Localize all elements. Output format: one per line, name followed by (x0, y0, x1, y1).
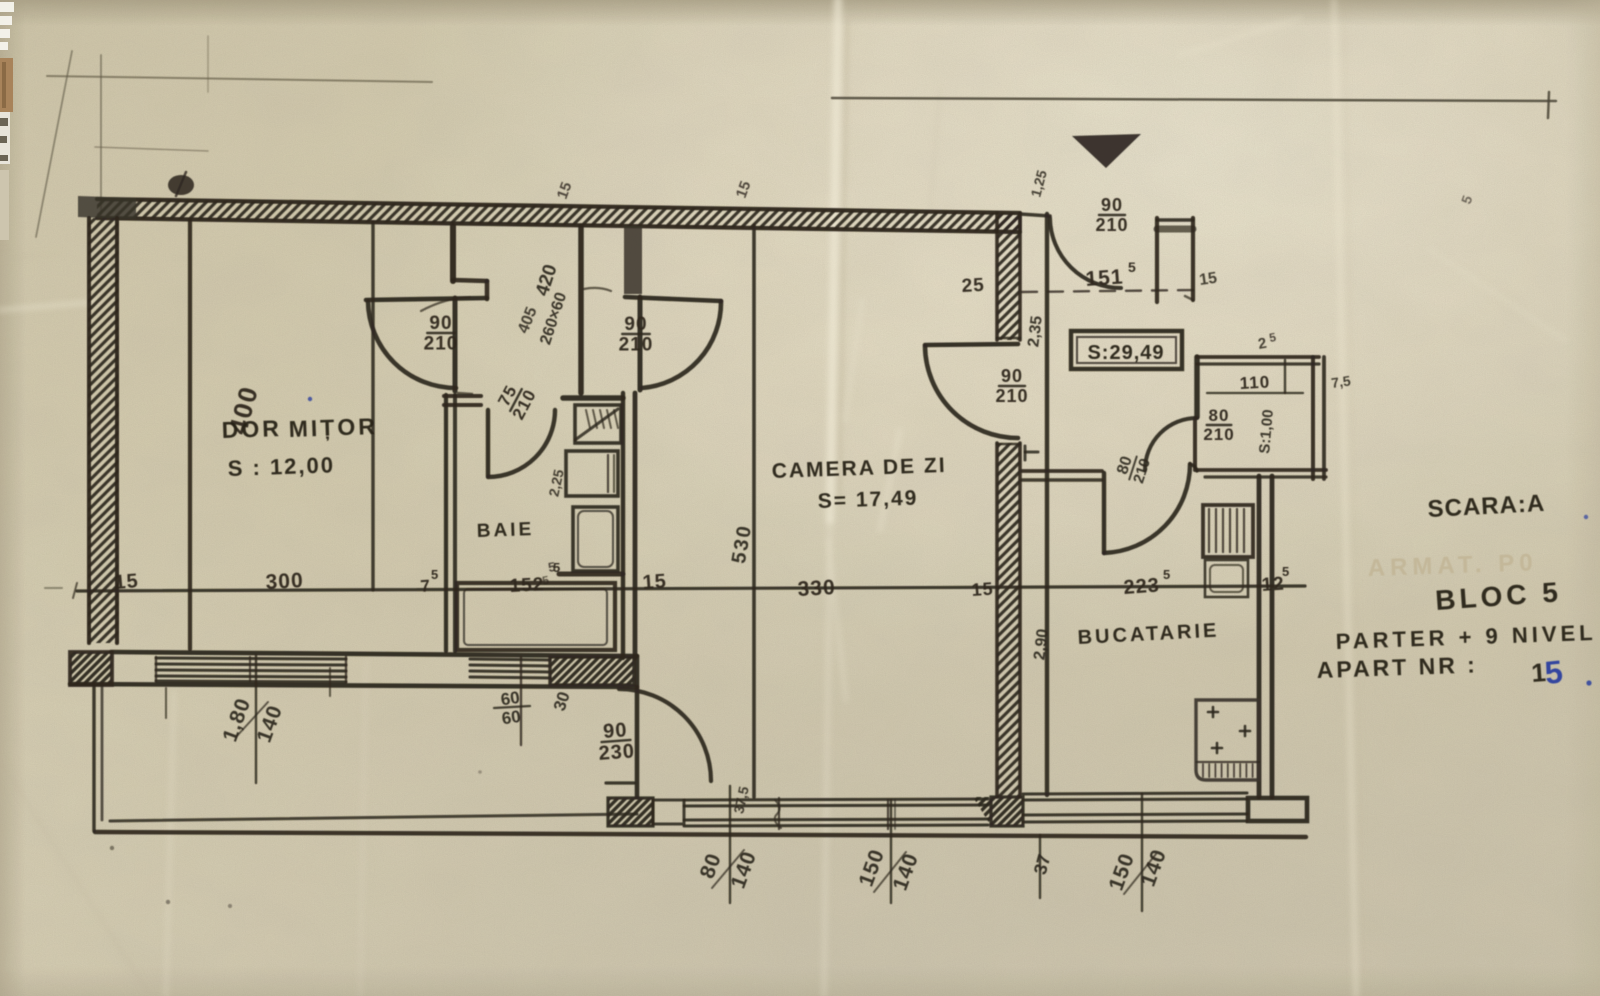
svg-text:S= 17,49: S= 17,49 (817, 486, 918, 512)
svg-text:15: 15 (642, 570, 668, 594)
svg-text:80: 80 (1209, 406, 1230, 425)
svg-text:300: 300 (265, 569, 304, 594)
svg-text:210: 210 (1095, 215, 1128, 235)
svg-text:5: 5 (1128, 259, 1136, 275)
svg-text:S : 12,00: S : 12,00 (227, 452, 335, 481)
svg-text:25: 25 (961, 275, 985, 297)
svg-text:90: 90 (1001, 366, 1023, 386)
svg-text:60: 60 (501, 707, 522, 728)
svg-text:S:29,49: S:29,49 (1087, 342, 1164, 364)
svg-text:90: 90 (624, 314, 647, 335)
svg-text:DOR: DOR (221, 415, 282, 443)
svg-text:210: 210 (619, 335, 654, 356)
svg-text:15: 15 (114, 570, 140, 594)
svg-text:7,5: 7,5 (1330, 372, 1352, 391)
svg-text:MIȚOR: MIȚOR (288, 413, 378, 442)
svg-text:15: 15 (971, 579, 994, 600)
svg-text:90: 90 (1101, 195, 1123, 215)
svg-text:151: 151 (1085, 265, 1125, 291)
svg-text:5: 5 (1163, 567, 1170, 582)
svg-text:7: 7 (420, 576, 431, 596)
svg-text:BAIE: BAIE (476, 519, 534, 542)
svg-text:110: 110 (1239, 372, 1270, 393)
svg-text:5: 5 (553, 560, 560, 575)
svg-text:330: 330 (797, 576, 836, 601)
svg-text:5: 5 (1282, 564, 1289, 579)
svg-text:210: 210 (424, 334, 459, 355)
svg-text:210: 210 (1203, 425, 1234, 444)
svg-text:5: 5 (431, 567, 438, 582)
svg-text:210: 210 (995, 386, 1028, 406)
svg-text:15: 15 (1198, 270, 1218, 289)
svg-text:223: 223 (1123, 575, 1161, 599)
svg-text:5: 5 (1543, 653, 1564, 691)
svg-text:90: 90 (429, 313, 452, 334)
svg-text:152: 152 (509, 574, 545, 597)
svg-text:230: 230 (598, 740, 636, 764)
